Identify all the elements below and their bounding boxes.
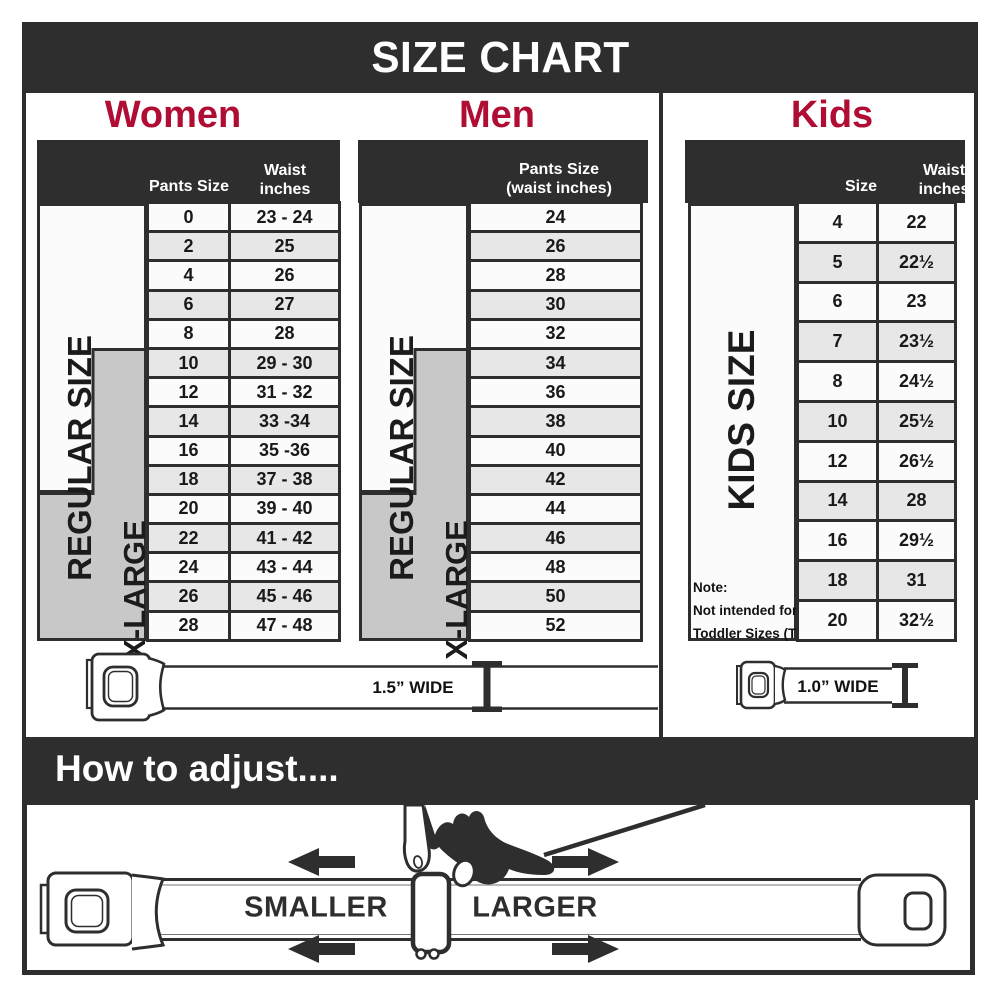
table-row: 522½ [798, 242, 956, 282]
waist-cell: 23½ [878, 322, 956, 362]
table-row: 1428 [798, 481, 956, 521]
size-cell: 18 [798, 561, 878, 601]
pants-size-cell: 18 [148, 465, 230, 494]
waist-cell: 43 - 44 [230, 553, 340, 582]
waist-cell: 31 - 32 [230, 378, 340, 407]
waist-cell: 28 [230, 319, 340, 348]
table-row: 023 - 24 [148, 203, 340, 232]
waist-cell: 25 [230, 232, 340, 261]
kids-col-waist: Waist inches [919, 161, 970, 199]
table-row: 2039 - 40 [148, 494, 340, 523]
table-row: 24 [470, 203, 642, 232]
table-row: 623 [798, 282, 956, 322]
table-row: 44 [470, 494, 642, 523]
women-size-table: 023 - 242254266278281029 - 301231 - 3214… [146, 201, 341, 642]
kids-heading: Kids [791, 94, 873, 137]
pants-size-cell: 10 [148, 348, 230, 377]
waist-cell: 25½ [878, 401, 956, 441]
waist-cell: 27 [230, 290, 340, 319]
page-title: SIZE CHART [371, 33, 629, 83]
table-row: 1837 - 38 [148, 465, 340, 494]
table-row: 32 [470, 319, 642, 348]
table-row: 422 [798, 203, 956, 243]
kids-col-size: Size [845, 177, 877, 196]
buckle-icon [737, 662, 785, 708]
arrow-left-icon [288, 848, 355, 876]
table-row: 38 [470, 407, 642, 436]
pants-size-cell: 16 [148, 436, 230, 465]
table-row: 28 [470, 261, 642, 290]
waist-cell: 37 - 38 [230, 465, 340, 494]
pants-size-cell: 24 [470, 203, 642, 232]
women-heading: Women [105, 94, 242, 137]
table-row: 1226½ [798, 441, 956, 481]
waist-cell: 47 - 48 [230, 611, 340, 640]
kids-size-table: 422522½623723½824½1025½1226½14281629½183… [796, 201, 957, 642]
table-row: 1231 - 32 [148, 378, 340, 407]
pants-size-cell: 28 [148, 611, 230, 640]
men-col-pants-size: Pants Size (waist inches) [506, 160, 612, 198]
waist-cell: 32½ [878, 600, 956, 640]
pants-size-cell: 26 [148, 582, 230, 611]
pants-size-cell: 50 [470, 582, 642, 611]
left-border [22, 93, 26, 737]
table-row: 627 [148, 290, 340, 319]
pants-size-cell: 48 [470, 553, 642, 582]
size-cell: 8 [798, 362, 878, 402]
table-row: 2645 - 46 [148, 582, 340, 611]
size-chart-page: { "title": "SIZE CHART", "colors": { "da… [0, 0, 1000, 1000]
kids-note: Note: Not intended for Toddler Sizes (T) [693, 576, 801, 645]
waist-cell: 33 -34 [230, 407, 340, 436]
belt-tip [859, 875, 945, 945]
waist-cell: 35 -36 [230, 436, 340, 465]
table-row: 48 [470, 553, 642, 582]
waist-cell: 26½ [878, 441, 956, 481]
pants-size-cell: 8 [148, 319, 230, 348]
table-row: 2032½ [798, 600, 956, 640]
waist-cell: 26 [230, 261, 340, 290]
table-row: 30 [470, 290, 642, 319]
men-heading: Men [459, 94, 535, 137]
table-row: 36 [470, 378, 642, 407]
table-row: 1831 [798, 561, 956, 601]
smaller-label: SMALLER [244, 892, 388, 925]
arrow-right-icon [552, 848, 619, 876]
section-divider [659, 93, 663, 737]
table-row: 723½ [798, 322, 956, 362]
table-row: 50 [470, 582, 642, 611]
waist-cell: 28 [878, 481, 956, 521]
width-measure-icon [892, 663, 918, 708]
pants-size-cell: 40 [470, 436, 642, 465]
size-cell: 20 [798, 600, 878, 640]
adjust-illustration [27, 805, 970, 970]
waist-cell: 24½ [878, 362, 956, 402]
waist-cell: 45 - 46 [230, 582, 340, 611]
pants-size-cell: 44 [470, 494, 642, 523]
waist-cell: 23 [878, 282, 956, 322]
size-tables-panel: Women Men Kids Pants Size Waist inches R… [22, 93, 978, 737]
table-row: 1029 - 30 [148, 348, 340, 377]
kids-table-header: Size Waist inches [685, 140, 965, 203]
women-col-pants-size: Pants Size [149, 177, 229, 196]
waist-cell: 31 [878, 561, 956, 601]
table-row: 824½ [798, 362, 956, 402]
how-to-adjust-bar: How to adjust.... [22, 737, 978, 800]
pants-size-cell: 26 [470, 232, 642, 261]
waist-cell: 22½ [878, 242, 956, 282]
title-bar: SIZE CHART [22, 22, 978, 93]
women-table-header: Pants Size Waist inches [37, 140, 340, 203]
size-cell: 10 [798, 401, 878, 441]
men-size-table: 242628303234363840424446485052 [468, 201, 643, 642]
pants-size-cell: 4 [148, 261, 230, 290]
men-regular-size-label: REGULAR SIZE [383, 335, 421, 581]
table-row: 828 [148, 319, 340, 348]
table-row: 34 [470, 348, 642, 377]
table-row: 1635 -36 [148, 436, 340, 465]
belt-adjuster [413, 874, 449, 959]
table-row: 26 [470, 232, 642, 261]
size-cell: 12 [798, 441, 878, 481]
table-row: 52 [470, 611, 642, 640]
size-cell: 7 [798, 322, 878, 362]
table-row: 225 [148, 232, 340, 261]
pants-size-cell: 30 [470, 290, 642, 319]
pants-size-cell: 34 [470, 348, 642, 377]
adult-belt-width-label: 1.5” WIDE [372, 678, 453, 698]
pants-size-cell: 6 [148, 290, 230, 319]
pull-strap-line [544, 805, 705, 855]
pants-size-cell: 2 [148, 232, 230, 261]
size-cell: 4 [798, 203, 878, 243]
pants-size-cell: 20 [148, 494, 230, 523]
waist-cell: 22 [878, 203, 956, 243]
pants-size-cell: 42 [470, 465, 642, 494]
table-row: 2241 - 42 [148, 524, 340, 553]
waist-cell: 39 - 40 [230, 494, 340, 523]
width-measure-icon [472, 661, 502, 712]
size-cell: 6 [798, 282, 878, 322]
kids-size-label: KIDS SIZE [721, 330, 763, 511]
pants-size-cell: 22 [148, 524, 230, 553]
buckle-icon [41, 873, 163, 949]
adjust-illustration-box: SMALLER LARGER [22, 800, 975, 975]
buckle-icon [87, 654, 164, 720]
table-row: 1433 -34 [148, 407, 340, 436]
waist-cell: 29 - 30 [230, 348, 340, 377]
women-col-waist: Waist inches [260, 161, 311, 199]
how-to-adjust-heading: How to adjust.... [55, 737, 339, 800]
pants-size-cell: 52 [470, 611, 642, 640]
pants-size-cell: 38 [470, 407, 642, 436]
table-row: 2443 - 44 [148, 553, 340, 582]
size-cell: 16 [798, 521, 878, 561]
pants-size-cell: 36 [470, 378, 642, 407]
men-table-header: Pants Size (waist inches) [358, 140, 648, 203]
pants-size-cell: 0 [148, 203, 230, 232]
table-row: 1629½ [798, 521, 956, 561]
waist-cell: 29½ [878, 521, 956, 561]
table-row: 1025½ [798, 401, 956, 441]
size-cell: 5 [798, 242, 878, 282]
table-row: 2847 - 48 [148, 611, 340, 640]
table-row: 42 [470, 465, 642, 494]
waist-cell: 23 - 24 [230, 203, 340, 232]
pants-size-cell: 12 [148, 378, 230, 407]
right-border [974, 93, 978, 737]
table-row: 46 [470, 524, 642, 553]
pants-size-cell: 46 [470, 524, 642, 553]
larger-label: LARGER [472, 892, 597, 925]
pants-size-cell: 14 [148, 407, 230, 436]
table-row: 40 [470, 436, 642, 465]
pants-size-cell: 24 [148, 553, 230, 582]
pants-size-cell: 32 [470, 319, 642, 348]
size-cell: 14 [798, 481, 878, 521]
kids-belt-width-label: 1.0” WIDE [797, 677, 878, 697]
table-row: 426 [148, 261, 340, 290]
waist-cell: 41 - 42 [230, 524, 340, 553]
women-regular-size-label: REGULAR SIZE [61, 335, 99, 581]
pants-size-cell: 28 [470, 261, 642, 290]
